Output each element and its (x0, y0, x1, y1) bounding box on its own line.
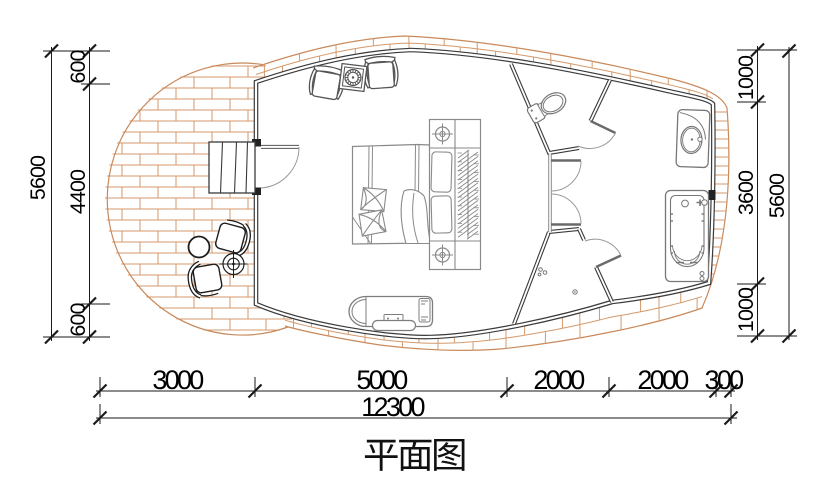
svg-text:300: 300 (705, 365, 744, 395)
svg-text:5000: 5000 (356, 365, 407, 395)
svg-text:5600: 5600 (26, 155, 50, 200)
svg-text:600: 600 (66, 49, 90, 83)
svg-text:1000: 1000 (734, 287, 758, 332)
svg-text:600: 600 (66, 302, 90, 336)
svg-text:2000: 2000 (637, 365, 688, 395)
svg-text:4400: 4400 (66, 169, 90, 214)
svg-text:1000: 1000 (734, 55, 758, 100)
svg-text:3600: 3600 (734, 170, 758, 215)
svg-text:3000: 3000 (152, 365, 203, 395)
svg-text:12300: 12300 (361, 392, 424, 422)
svg-text:5600: 5600 (765, 173, 789, 218)
svg-text:2000: 2000 (533, 365, 584, 395)
